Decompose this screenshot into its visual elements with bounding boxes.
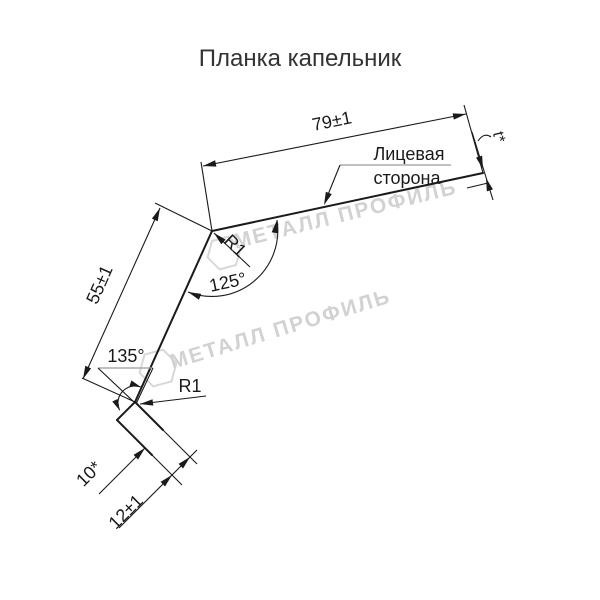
arrowhead — [453, 111, 467, 120]
profile-face-and-side — [117, 173, 483, 420]
arrowhead — [140, 399, 154, 407]
watermark-lower: МЕТАЛЛ ПРОФИЛЬ — [135, 285, 393, 389]
arrowhead — [321, 192, 332, 206]
profile-drawing: МЕТАЛЛ ПРОФИЛЬ МЕТАЛЛ ПРОФИЛЬ Планка кап… — [0, 0, 600, 600]
dimension-55: 55±1 — [80, 203, 212, 402]
dimension-label: 10* — [72, 457, 105, 490]
profile-lip-lower-edge — [117, 420, 152, 455]
radius-bottom: R1 — [140, 376, 206, 407]
arrowhead — [129, 380, 141, 389]
lip-upper-extension-line — [163, 430, 197, 464]
angle-label: 135° — [107, 346, 144, 366]
dimension-thickness: t* — [472, 130, 508, 200]
watermark-text: МЕТАЛЛ ПРОФИЛЬ — [167, 285, 393, 374]
face-side-text-line1: Лицевая — [373, 144, 444, 164]
drawing-title: Планка капельник — [199, 45, 402, 72]
dimension-label: 79±1 — [310, 107, 353, 135]
arrowhead — [202, 160, 216, 169]
sheet-underside-tick — [467, 183, 488, 188]
dimension-label: 12±1 — [105, 491, 147, 533]
arrowhead — [80, 366, 91, 380]
profile-lip-upper-edge — [135, 402, 163, 430]
dimension-label: 55±1 — [82, 262, 117, 307]
arrowhead — [152, 207, 163, 221]
dimension-10: 10* — [72, 446, 147, 494]
face-side-text-line2: сторона — [373, 168, 441, 188]
leader-leg — [98, 368, 135, 403]
extension-line — [201, 162, 212, 231]
arrowhead — [187, 289, 201, 300]
extension-line — [155, 203, 212, 231]
extension-line — [82, 378, 135, 402]
angle-label: 125° — [207, 268, 248, 295]
dimension-12: 12±1 — [105, 450, 197, 533]
arrowhead — [112, 399, 122, 412]
leader-hook — [478, 135, 491, 141]
radius-label: R1 — [178, 376, 201, 396]
thickness-label: t* — [489, 130, 508, 144]
drawing-page: МЕТАЛЛ ПРОФИЛЬ МЕТАЛЛ ПРОФИЛЬ Планка кап… — [0, 0, 600, 600]
